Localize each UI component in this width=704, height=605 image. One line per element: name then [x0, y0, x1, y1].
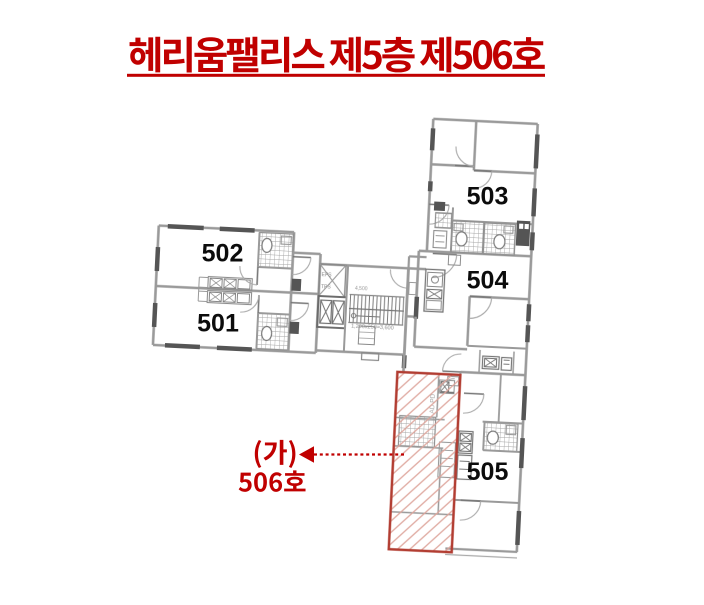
- svg-text:504: 504: [467, 267, 509, 295]
- svg-text:501: 501: [197, 310, 239, 338]
- svg-text:502: 502: [202, 240, 244, 268]
- svg-text:503: 503: [467, 183, 509, 211]
- svg-text:TPS: TPS: [321, 284, 332, 291]
- svg-text:505: 505: [467, 458, 509, 486]
- svg-text:4,500: 4,500: [355, 286, 368, 293]
- svg-text:EPS: EPS: [321, 272, 332, 279]
